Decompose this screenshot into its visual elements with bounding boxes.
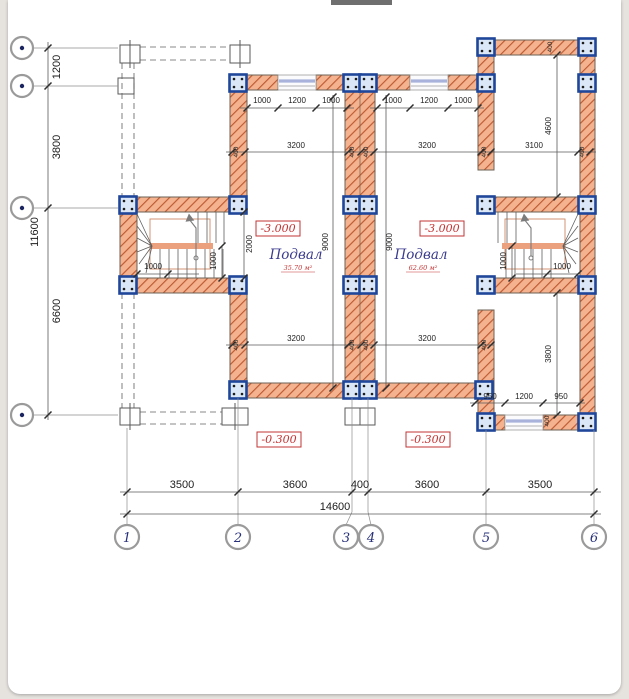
basement-floor-plan: 1000 1200 1000 1000 1200 1000 3200 3200 … bbox=[0, 0, 629, 699]
dim-label: 3200 bbox=[418, 141, 436, 150]
dim-label: 3600 bbox=[415, 479, 439, 491]
dim-label: 400 bbox=[481, 146, 488, 157]
dim-label: 3500 bbox=[170, 479, 194, 491]
stair-direction-arrow bbox=[524, 219, 533, 260]
elevation-label: -0.300 bbox=[410, 433, 445, 446]
dim-label: 400 bbox=[544, 415, 551, 426]
dim-label: 400 bbox=[351, 479, 369, 491]
dim-label: 9000 bbox=[385, 233, 394, 251]
dim-label: 1000 bbox=[384, 96, 402, 105]
dim-label: 950 bbox=[554, 392, 568, 401]
dim-label: 1000 bbox=[499, 252, 508, 270]
elevation-label: -0.300 bbox=[261, 433, 296, 446]
room-name: Подвал bbox=[269, 247, 323, 263]
room-area: 35.70 м² bbox=[284, 264, 313, 272]
dim-label: 3800 bbox=[544, 345, 553, 363]
axis-number: 1 bbox=[123, 531, 131, 546]
dim-label: 400 bbox=[233, 339, 240, 350]
dim-label: 3800 bbox=[51, 135, 63, 159]
dim-label: 3100 bbox=[525, 141, 543, 150]
axis-number: 2 bbox=[233, 531, 242, 546]
room-area: 62.60 м² bbox=[409, 264, 438, 272]
stair-landing bbox=[150, 243, 213, 249]
dim-label: 4600 bbox=[544, 117, 553, 135]
dashed-terrace-outline bbox=[122, 47, 230, 424]
dim-label: 6600 bbox=[51, 299, 63, 323]
axis-number: 4 bbox=[366, 531, 375, 546]
elevation-label: -3.000 bbox=[260, 222, 295, 235]
window-top-left bbox=[278, 75, 316, 90]
dim-label: 400 bbox=[363, 146, 370, 157]
dim-label: 400 bbox=[349, 339, 356, 350]
dim-label: 400 bbox=[579, 146, 586, 157]
dim-label: 3600 bbox=[283, 479, 307, 491]
dim-label: 1200 bbox=[51, 55, 63, 79]
dim-label: 1000 bbox=[322, 96, 340, 105]
walls bbox=[120, 40, 595, 430]
cropped-title-bar bbox=[331, 0, 392, 5]
dim-label: 1000 bbox=[209, 252, 218, 270]
page: { "sheet": { "background": "#ffffff", "p… bbox=[0, 0, 629, 699]
axis-number: 5 bbox=[482, 531, 490, 546]
axis-number: 3 bbox=[342, 531, 350, 546]
dim-label: 3500 bbox=[528, 479, 552, 491]
dim-label: 400 bbox=[349, 146, 356, 157]
stair-direction-arrow bbox=[189, 219, 198, 260]
left-axis-dimensions: 1200 3800 6600 11600 bbox=[11, 37, 118, 426]
dim-label: 400 bbox=[481, 339, 488, 350]
dim-label: 3200 bbox=[418, 334, 436, 343]
dim-label: 400 bbox=[547, 41, 554, 52]
dim-label: 400 bbox=[233, 146, 240, 157]
dim-label: 2000 bbox=[245, 235, 254, 253]
dim-label: 1000 bbox=[253, 96, 271, 105]
dim-label: 950 bbox=[483, 392, 497, 401]
dim-label: 1200 bbox=[515, 392, 533, 401]
dim-label: 400 bbox=[363, 339, 370, 350]
room-name: Подвал bbox=[394, 247, 448, 263]
window-bottom-right bbox=[505, 415, 543, 430]
dim-label: 11600 bbox=[29, 217, 41, 247]
window-top-right bbox=[410, 75, 448, 90]
bottom-axis-bubbles: 1 2 3 4 5 6 bbox=[115, 525, 606, 549]
axis-number: 6 bbox=[590, 531, 598, 546]
dim-label: 1200 bbox=[288, 96, 306, 105]
dim-label: 1000 bbox=[553, 262, 571, 271]
elevation-label: -3.000 bbox=[424, 222, 459, 235]
dim-label: 3200 bbox=[287, 334, 305, 343]
dim-label: 1000 bbox=[144, 262, 162, 271]
dim-label: 1000 bbox=[454, 96, 472, 105]
dim-label: 1200 bbox=[420, 96, 438, 105]
dim-label: 14600 bbox=[320, 501, 351, 513]
dim-label: 3200 bbox=[287, 141, 305, 150]
